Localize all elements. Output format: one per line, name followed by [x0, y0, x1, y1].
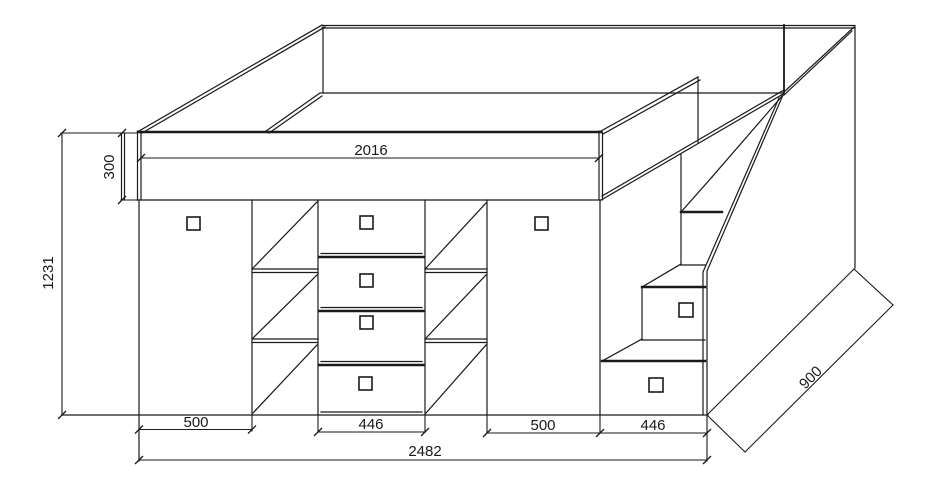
shelf-diagonal	[253, 345, 317, 413]
bed-base-depth-edge	[602, 90, 784, 196]
shelf-column-left	[252, 202, 318, 413]
drawer-1-handle[interactable]	[360, 216, 373, 229]
dim-right-door-label: 500	[530, 417, 555, 434]
dim-depth-label: 900	[796, 363, 826, 393]
drawer-3-handle[interactable]	[360, 316, 373, 329]
dimension-left-door: 500	[135, 414, 256, 434]
dim-drawer-block-label: 446	[358, 416, 383, 433]
right-wall-top-edge	[784, 27, 854, 92]
wardrobe-right-door[interactable]	[535, 217, 548, 230]
guardrail-top-edge-2	[603, 80, 700, 134]
guardrail-top-edge	[601, 77, 698, 131]
step2-tread-depth	[642, 264, 681, 287]
drawer-stack[interactable]	[319, 216, 424, 412]
headboard-inner-edge-2	[269, 96, 322, 133]
dimension-total-width: 2482	[135, 415, 711, 464]
loft-bed-drawing: 2016 300 1231 500 446	[0, 0, 941, 484]
dim-bed-length-label: 2016	[354, 142, 387, 159]
dim-stair-block-label: 446	[640, 417, 665, 434]
drawer-4-handle[interactable]	[359, 377, 372, 390]
cabinet-carcass	[62, 200, 708, 461]
dimension-line	[707, 269, 854, 415]
shelf-diagonal	[426, 203, 486, 268]
extension-line	[707, 415, 745, 452]
shelf-diagonal	[426, 275, 486, 338]
shelf-column-right	[425, 203, 487, 413]
dimensions: 2016 300 1231 500 446	[40, 129, 893, 464]
technical-drawing-canvas: 2016 300 1231 500 446	[0, 0, 941, 484]
shelf-diagonal	[253, 275, 317, 338]
bed-top-perspective	[139, 25, 855, 268]
stair-stringer-inner	[703, 98, 779, 415]
left-door-handle[interactable]	[187, 217, 200, 230]
dimension-cabinet-height: 1231	[40, 129, 137, 419]
extension-line	[854, 269, 893, 305]
dim-total-width-label: 2482	[408, 443, 441, 460]
headboard-inner-edge	[266, 93, 320, 131]
dim-left-door-label: 500	[183, 414, 208, 431]
stair-side-top-edge	[712, 95, 783, 177]
headboard-top-edge-inner	[142, 27, 325, 133]
shelf-diagonal	[426, 345, 486, 413]
step2-drawer-handle[interactable]	[679, 303, 693, 317]
right-wall-top-edge-2	[784, 31, 852, 95]
dimension-depth: 900	[707, 269, 893, 452]
wardrobe-left-door[interactable]	[187, 217, 200, 230]
bed-base-depth-edge-2	[602, 94, 784, 200]
dimension-stair-block: 446	[600, 417, 711, 437]
dim-frame-height-label: 300	[101, 154, 118, 179]
drawer-2-handle[interactable]	[360, 274, 373, 287]
dimension-bed-length: 2016	[137, 142, 603, 162]
dim-cabinet-height-label: 1231	[40, 256, 57, 289]
step1-tread-depth	[602, 339, 642, 361]
stair-stringer-outer	[707, 95, 783, 415]
dimension-drawer-block: 446	[314, 415, 429, 436]
step3-tread-depth	[681, 177, 712, 212]
shelf-diagonal	[253, 202, 317, 268]
step1-drawer-handle[interactable]	[649, 378, 663, 392]
right-door-handle[interactable]	[535, 217, 548, 230]
dimension-right-door: 500	[483, 415, 604, 437]
